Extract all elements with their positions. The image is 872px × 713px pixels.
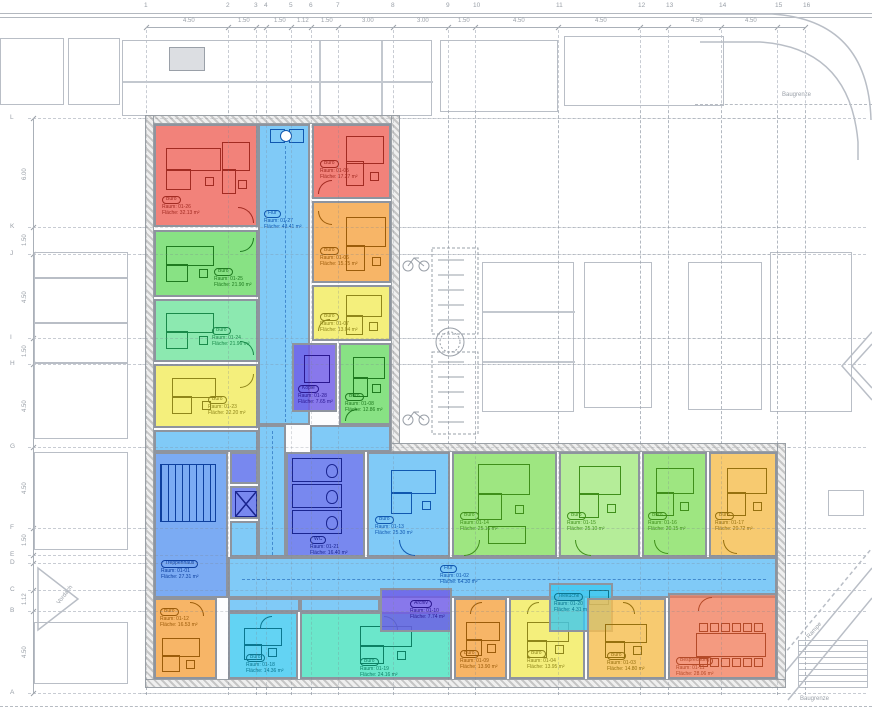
room-area: Fläche: 7.74 m² — [410, 615, 445, 621]
chair-icon — [607, 504, 616, 513]
chair-icon — [372, 384, 381, 393]
room-stamp: Büro — [460, 650, 479, 658]
chair-icon — [699, 623, 708, 632]
room-01-28: KopieRaum: 01-28Fläche: 7.65 m² — [292, 343, 337, 412]
door-swing-icon — [723, 540, 737, 554]
room-flur-lift — [230, 521, 258, 557]
door-swing-icon — [399, 540, 415, 556]
door-swing-icon — [464, 540, 480, 556]
desk-top — [222, 142, 250, 171]
toilet-icon — [326, 464, 338, 478]
room-label-01-27: FlurRaum: 01-27Fläche: 43.41 m² — [264, 210, 302, 230]
room-label-01-03: BüroRaum: 01-03Fläche: 14.80 m² — [607, 652, 645, 672]
room-area: Fläche: 13.04 m² — [320, 328, 358, 334]
room-label-01-06: BüroRaum: 01-06Fläche: 15.75 m² — [320, 247, 358, 267]
door-swing-icon — [260, 616, 272, 628]
stairs-icon — [160, 464, 216, 522]
desk-return — [391, 492, 412, 514]
wc-stall — [292, 484, 342, 508]
room-label-01-19: BüroRaum: 01-19Fläche: 24.16 m² — [360, 658, 398, 678]
door-swing-icon — [240, 238, 254, 252]
desk-top — [656, 468, 694, 494]
room-label-01-02: FlurRaum: 01-02Fläche: 64.30 m² — [440, 565, 478, 585]
room-stamp: Büro — [715, 512, 734, 520]
room-label-01-16: BüroRaum: 01-16Fläche: 20.15 m² — [648, 512, 686, 532]
room-01-23: BüroRaum: 01-23Fläche: 22.20 m² — [154, 364, 258, 428]
room-stamp: Kopie — [298, 385, 319, 393]
room-01-09: BüroRaum: 01-09Fläche: 13.90 m² — [454, 598, 507, 679]
room-01-03: BüroRaum: 01-03Fläche: 14.80 m² — [587, 598, 666, 679]
chair-icon — [369, 322, 378, 331]
chair-icon — [753, 502, 762, 511]
room-label-01-25: BüroRaum: 01-25Fläche: 21.90 m² — [214, 268, 252, 288]
room-01-02: FlurRaum: 01-02Fläche: 64.30 m² — [228, 557, 777, 598]
room-01-11: BesprechungRaum: 01-11Fläche: 28.06 m² — [668, 593, 777, 679]
room-01-06: BüroRaum: 01-06Fläche: 15.75 m² — [312, 201, 391, 283]
door-swing-icon — [318, 211, 332, 225]
room-stamp: Büro — [246, 654, 265, 662]
chair-icon — [422, 501, 431, 510]
door-swing-icon — [527, 602, 539, 614]
room-label-01-05: BüroRaum: 01-05Fläche: 17.27 m² — [320, 160, 358, 180]
room-01-18: BüroRaum: 01-18Fläche: 14.36 m² — [228, 612, 298, 679]
room-area: Fläche: 21.96 m² — [212, 342, 250, 348]
room-flur-jog1 — [228, 598, 300, 612]
room-01-08: BüroRaum: 01-08Fläche: 12.86 m² — [339, 343, 391, 425]
desk-top — [353, 357, 385, 379]
room-area: Fläche: 7.65 m² — [298, 400, 333, 406]
room-stamp: Archiv — [410, 600, 432, 608]
room-label-01-23: BüroRaum: 01-23Fläche: 22.20 m² — [208, 396, 246, 416]
desk-top — [478, 464, 530, 495]
desk-top — [391, 470, 436, 494]
room-label-01-26: BüroRaum: 01-26Fläche: 32.13 m² — [162, 196, 200, 216]
room-area: Fläche: 32.13 m² — [162, 211, 200, 217]
desk-top — [346, 217, 386, 247]
room-label-01-20: TeekücheRaum: 01-20Fläche: 4.31 m² — [554, 593, 589, 613]
desk-return — [166, 264, 188, 282]
room-stamp: Büro — [648, 512, 667, 520]
room-area: Fläche: 43.41 m² — [264, 225, 302, 231]
room-stamp: Büro — [162, 196, 181, 204]
desk-top — [579, 466, 621, 495]
room-eingang — [154, 430, 258, 452]
room-label-01-11: BesprechungRaum: 01-11Fläche: 28.06 m² — [676, 657, 714, 677]
chair-icon — [370, 172, 379, 181]
desk-icon — [166, 313, 214, 349]
chair-icon — [754, 623, 763, 632]
door-swing-icon — [318, 180, 332, 194]
door-swing-icon — [470, 602, 482, 614]
room-area: Fläche: 20.15 m² — [648, 527, 686, 533]
room-01-10: ArchivRaum: 01-10Fläche: 7.74 m² — [380, 588, 452, 632]
room-stamp: Flur — [264, 210, 281, 218]
room-flur-junction — [310, 425, 391, 452]
room-label-01-17: BüroRaum: 01-17Fläche: 20.72 m² — [715, 512, 753, 532]
desk-return — [172, 396, 192, 414]
room-area: Fläche: 22.20 m² — [208, 411, 246, 417]
room-01-26: BüroRaum: 01-26Fläche: 32.13 m² — [154, 124, 258, 227]
room-stamp: Büro — [460, 512, 479, 520]
room-area: Fläche: 27.31 m² — [161, 575, 199, 581]
room-01-01: TreppenhausRaum: 01-01Fläche: 27.31 m² — [154, 452, 228, 598]
wc-stall — [292, 458, 342, 482]
desk-icon — [166, 148, 221, 190]
column-icon — [280, 130, 292, 142]
room-area: Fläche: 64.30 m² — [440, 580, 478, 586]
room-area: Fläche: 13.90 m² — [460, 665, 498, 671]
room-01-24: BüroRaum: 01-24Fläche: 21.96 m² — [154, 299, 258, 362]
door-swing-icon — [240, 374, 254, 388]
door-swing-icon — [575, 540, 591, 556]
room-stamp: Büro — [160, 608, 179, 616]
desk-top — [727, 468, 767, 494]
room-label-01-04: BüroRaum: 01-04Fläche: 13.95 m² — [527, 650, 565, 670]
room-01-21: WCRaum: 01-21Fläche: 16.40 m² — [286, 452, 365, 557]
room-area: Fläche: 25.30 m² — [375, 531, 413, 537]
room-label-01-12: BüroRaum: 01-12Fläche: 16.53 m² — [160, 608, 198, 628]
room-01-16: BüroRaum: 01-16Fläche: 20.15 m² — [642, 452, 707, 557]
chair-icon — [515, 505, 524, 514]
room-stamp: WC — [310, 536, 326, 544]
room-area: Fläche: 13.95 m² — [527, 665, 565, 671]
room-area: Fläche: 12.86 m² — [345, 408, 383, 414]
room-label-01-15: BüroRaum: 01-15Fläche: 25.10 m² — [567, 512, 605, 532]
room-stamp: Büro — [214, 268, 233, 276]
desk-return — [166, 331, 188, 349]
desk-icon — [579, 466, 621, 518]
desk-icon — [656, 468, 694, 516]
chair-icon — [754, 658, 763, 667]
room-stamp: Treppenhaus — [161, 560, 198, 568]
door-swing-icon — [623, 602, 635, 614]
room-area: Fläche: 25.10 m² — [567, 527, 605, 533]
room-area: Fläche: 20.72 m² — [715, 527, 753, 533]
corridor-centerline — [242, 579, 766, 580]
room-stamp: Büro — [320, 160, 339, 168]
desk-icon — [166, 246, 214, 282]
room-01-05: BüroRaum: 01-05Fläche: 17.27 m² — [312, 124, 391, 199]
room-technik — [230, 452, 258, 484]
desk-icon — [162, 638, 200, 672]
room-label-01-28: KopieRaum: 01-28Fläche: 7.65 m² — [298, 385, 333, 405]
chair-icon — [397, 651, 406, 660]
floor-plan-canvas: Baugrenze Baugrenze Vordach Rampe 123456… — [0, 0, 872, 713]
desk-return — [222, 169, 236, 194]
desk-top — [166, 246, 214, 266]
chair-icon — [743, 623, 752, 632]
rooms-layer: BüroRaum: 01-26Fläche: 32.13 m²BüroRaum:… — [0, 0, 872, 713]
cabinet-icon — [304, 355, 330, 383]
corridor-centerline — [285, 146, 286, 422]
room-label-01-13: BüroRaum: 01-13Fläche: 25.30 m² — [375, 516, 413, 536]
desk-return — [162, 655, 180, 672]
room-stamp: Büro — [567, 512, 586, 520]
chair-icon — [680, 502, 689, 511]
room-stamp: Besprechung — [676, 657, 713, 665]
room-area: Fläche: 25.16 m² — [460, 527, 498, 533]
room-stamp: Teeküche — [554, 593, 583, 601]
chair-icon — [732, 658, 741, 667]
room-stamp: Büro — [607, 652, 626, 660]
room-area: Fläche: 21.90 m² — [214, 283, 252, 289]
room-stamp: Büro — [320, 247, 339, 255]
desk-return — [166, 169, 191, 190]
room-area: Fläche: 24.16 m² — [360, 673, 398, 679]
chair-icon — [721, 623, 730, 632]
chair-icon — [372, 257, 381, 266]
door-swing-icon — [238, 207, 254, 223]
corridor-centerline — [272, 431, 273, 555]
desk-top — [166, 313, 214, 333]
desk-icon — [353, 357, 385, 397]
room-label-01-08: BüroRaum: 01-08Fläche: 12.86 m² — [345, 393, 383, 413]
chair-icon — [743, 658, 752, 667]
room-area: Fläche: 14.36 m² — [246, 669, 284, 675]
room-01-14: BüroRaum: 01-14Fläche: 25.16 m² — [452, 452, 557, 557]
room-stamp: Büro — [360, 658, 379, 666]
room-stamp: Büro — [527, 650, 546, 658]
desk-icon — [222, 142, 250, 194]
room-area: Fläche: 16.40 m² — [310, 551, 348, 557]
door-swing-icon — [654, 540, 668, 554]
chair-icon — [199, 269, 208, 278]
wc-stall — [292, 510, 342, 534]
room-area: Fläche: 16.53 m² — [160, 623, 198, 629]
room-label-01-21: WCRaum: 01-21Fläche: 16.40 m² — [310, 536, 348, 556]
table-top — [696, 633, 766, 657]
chair-icon — [199, 336, 208, 345]
room-label-01-01: TreppenhausRaum: 01-01Fläche: 27.31 m² — [161, 560, 199, 580]
desk-top — [166, 148, 221, 171]
room-area: Fläche: 14.80 m² — [607, 667, 645, 673]
room-label-01-24: BüroRaum: 01-24Fläche: 21.96 m² — [212, 327, 250, 347]
room-area: Fläche: 4.31 m² — [554, 608, 589, 614]
desk-icon — [391, 470, 436, 514]
room-flur-verb — [258, 425, 286, 557]
room-01-07: BüroRaum: 01-07Fläche: 13.04 m² — [312, 285, 391, 341]
room-stamp: Flur — [440, 565, 457, 573]
room-label-01-10: ArchivRaum: 01-10Fläche: 7.74 m² — [410, 600, 445, 620]
room-01-25: BüroRaum: 01-25Fläche: 21.90 m² — [154, 230, 258, 297]
conference-table-icon — [696, 633, 766, 657]
room-stamp: Büro — [345, 393, 364, 401]
chair-icon — [205, 177, 214, 186]
room-stamp: Büro — [212, 327, 231, 335]
room-label-01-07: BüroRaum: 01-07Fläche: 13.04 m² — [320, 313, 358, 333]
chair-icon — [732, 623, 741, 632]
chair-icon — [238, 180, 247, 189]
toilet-icon — [326, 490, 338, 504]
door-swing-icon — [698, 597, 712, 611]
room-01-15: BüroRaum: 01-15Fläche: 25.10 m² — [559, 452, 640, 557]
room-aufzug — [230, 486, 258, 519]
room-area: Fläche: 28.06 m² — [676, 672, 714, 678]
room-01-13: BüroRaum: 01-13Fläche: 25.30 m² — [367, 452, 450, 557]
room-01-17: BüroRaum: 01-17Fläche: 20.72 m² — [709, 452, 777, 557]
room-stamp: Büro — [375, 516, 394, 524]
elevator-icon — [235, 491, 257, 517]
desk-icon — [727, 468, 767, 516]
room-stamp: Büro — [320, 313, 339, 321]
desk-top — [172, 378, 216, 398]
room-label-01-18: BüroRaum: 01-18Fläche: 14.36 m² — [246, 654, 284, 674]
toilet-icon — [326, 516, 338, 530]
room-flur-jog2 — [300, 598, 380, 612]
room-label-01-09: BüroRaum: 01-09Fläche: 13.90 m² — [460, 650, 498, 670]
chair-icon — [710, 623, 719, 632]
chair-icon — [721, 658, 730, 667]
room-area: Fläche: 17.27 m² — [320, 175, 358, 181]
room-label-01-14: BüroRaum: 01-14Fläche: 25.16 m² — [460, 512, 498, 532]
chair-icon — [186, 660, 195, 669]
room-area: Fläche: 15.75 m² — [320, 262, 358, 268]
room-stamp: Büro — [208, 396, 227, 404]
room-01-12: BüroRaum: 01-12Fläche: 16.53 m² — [154, 598, 217, 679]
